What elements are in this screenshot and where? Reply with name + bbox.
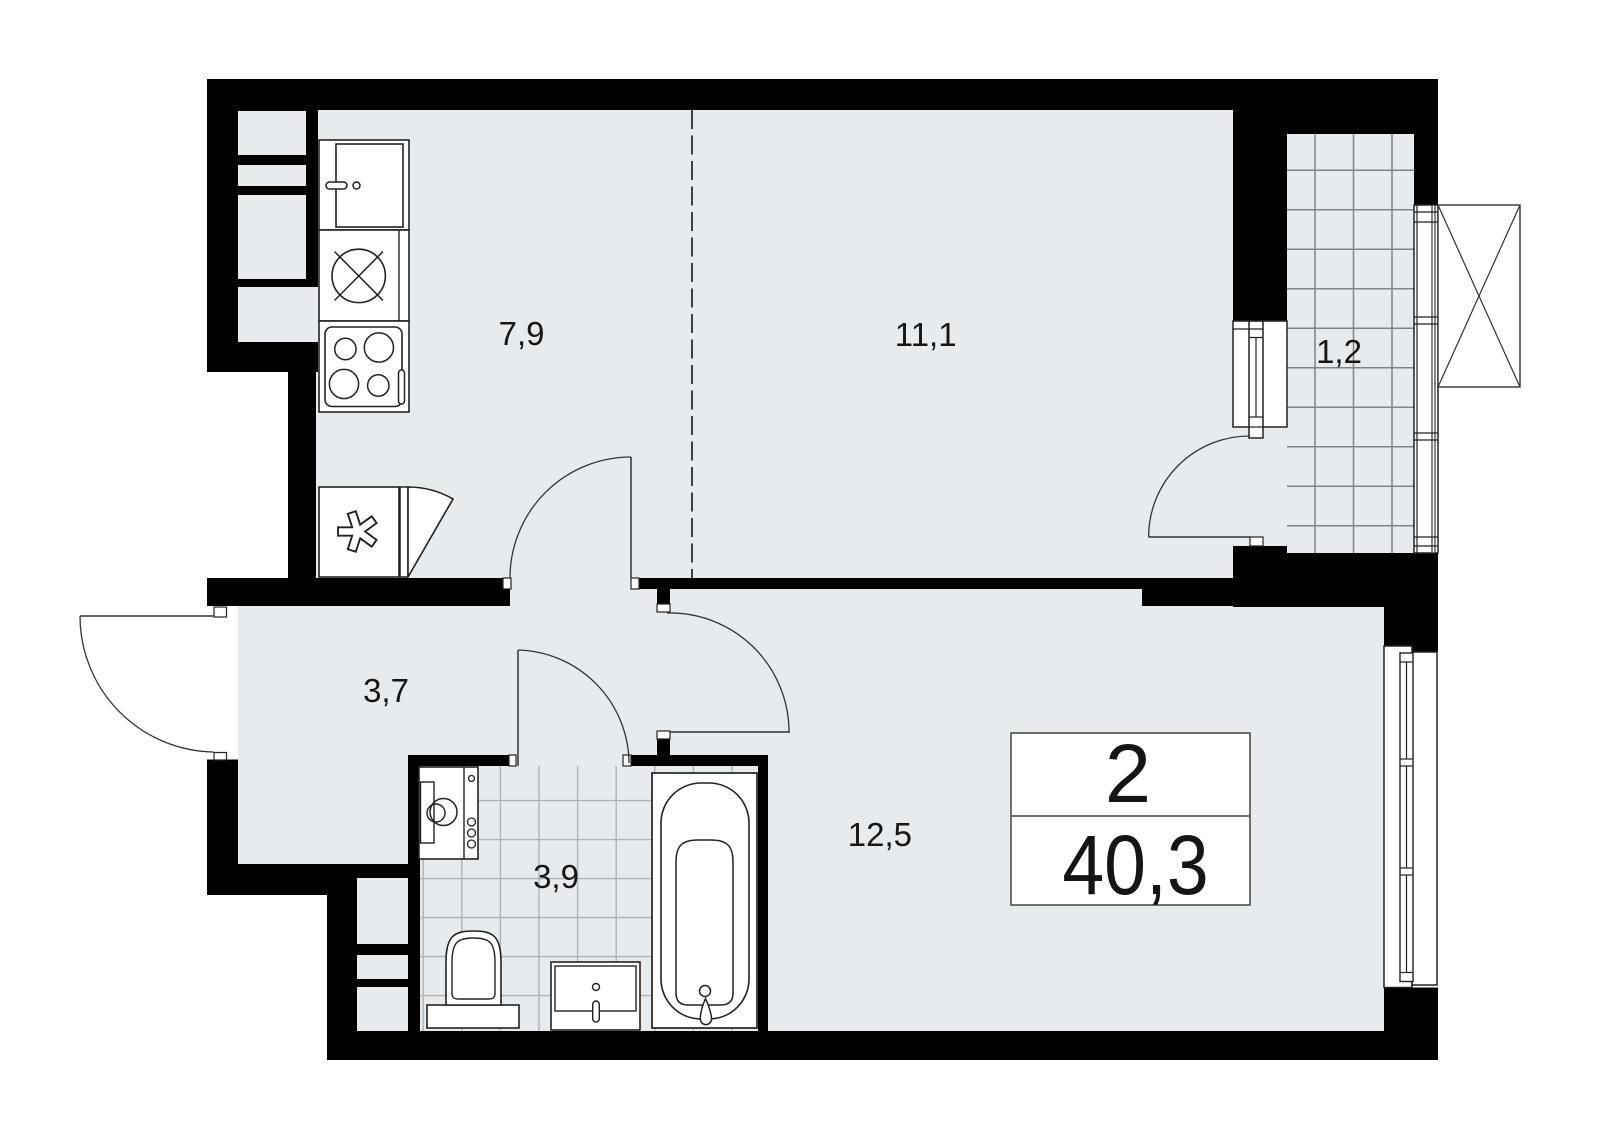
svg-text:3,7: 3,7 <box>363 672 409 709</box>
svg-text:12,5: 12,5 <box>848 816 912 853</box>
svg-text:1,2: 1,2 <box>1316 333 1362 370</box>
svg-text:7,9: 7,9 <box>499 315 545 352</box>
svg-text:3,9: 3,9 <box>533 858 579 895</box>
svg-text:40,3: 40,3 <box>1062 818 1208 912</box>
svg-text:2: 2 <box>1105 727 1151 820</box>
svg-text:11,1: 11,1 <box>895 316 957 353</box>
